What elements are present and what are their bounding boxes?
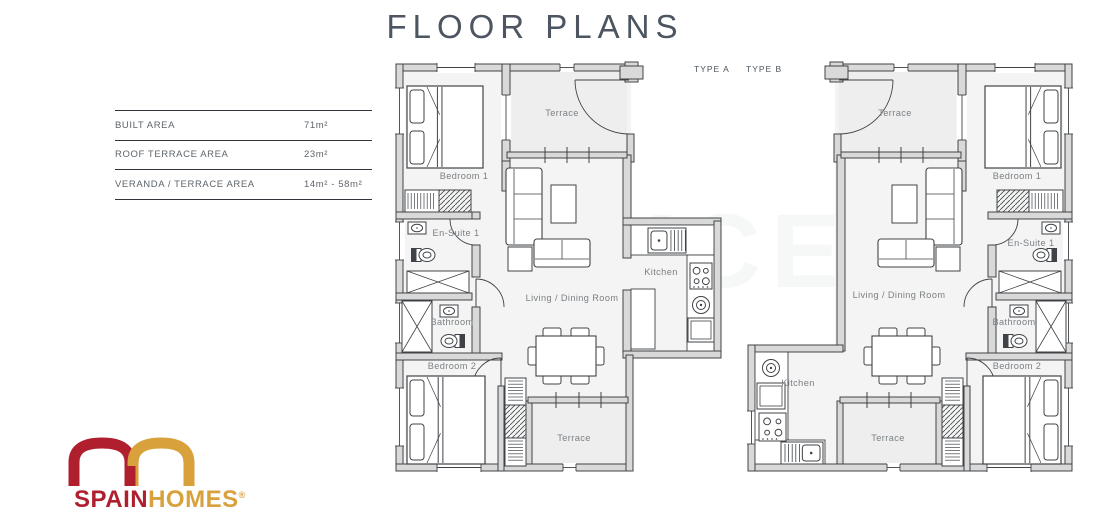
wall [472, 307, 480, 360]
wall [988, 212, 1072, 219]
wall [396, 64, 637, 71]
wardrobe-icon [942, 438, 963, 466]
wardrobe-icon [505, 438, 526, 466]
window-icon [894, 63, 908, 72]
toilet-icon [441, 334, 465, 348]
stove-icon [759, 413, 786, 441]
double-bed-icon [985, 86, 1061, 168]
room-label: Terrace [878, 108, 911, 118]
wall [396, 212, 480, 219]
logo-word-spain: SPAIN [74, 486, 148, 513]
oven-icon [688, 318, 714, 342]
wall [526, 401, 532, 464]
wall [964, 386, 970, 471]
wardrobe-icon [1029, 190, 1063, 212]
washbasin-icon [1010, 305, 1028, 317]
dining-table-icon [864, 328, 940, 384]
floor-plan-type-b: Bedroom 1TerraceEn-Suite 1BathroomBedroo… [746, 62, 1074, 473]
wall [472, 245, 480, 277]
wall [714, 221, 721, 358]
window-icon [957, 95, 967, 140]
window-icon [1063, 222, 1074, 260]
logo-wordmark: SPAINHOMES® [74, 486, 246, 514]
wall [748, 345, 755, 471]
wall [966, 353, 1072, 360]
wall [748, 345, 843, 352]
room-label: Bedroom 2 [428, 361, 477, 371]
wall [396, 353, 502, 360]
shower-icon [407, 271, 469, 293]
window-icon [560, 63, 574, 72]
wall [831, 64, 1072, 71]
wardrobe-hatch-icon [942, 405, 963, 438]
logo-arch-gold [133, 443, 189, 486]
washbasin-icon [1042, 222, 1060, 234]
shower-icon [402, 301, 432, 352]
logo-arches-icon [62, 436, 212, 489]
coffee-table-icon [551, 185, 576, 223]
wardrobe-hatch-icon [997, 190, 1029, 212]
double-bed-icon [407, 86, 483, 168]
wardrobe-hatch-icon [505, 405, 526, 438]
window-icon [394, 388, 405, 446]
room-label: Bedroom 2 [993, 361, 1042, 371]
wall [498, 386, 504, 471]
room-label: Terrace [557, 433, 590, 443]
toilet-icon [1003, 334, 1027, 348]
room-label: Bedroom 1 [993, 171, 1042, 181]
wall [988, 307, 996, 360]
floor-plan-type-a: Bedroom 1TerraceEn-Suite 1BathroomBedroo… [394, 62, 721, 473]
wall [988, 245, 996, 277]
wardrobe-hatch-icon [439, 190, 471, 212]
window-icon [394, 222, 405, 260]
room-label: En-Suite 1 [1008, 238, 1055, 248]
window-icon [887, 463, 900, 472]
room-label: Terrace [545, 108, 578, 118]
dining-table-icon [528, 328, 604, 384]
coffee-table-icon [892, 185, 917, 223]
logo-registered-mark: ® [239, 490, 246, 500]
room-label: Terrace [871, 433, 904, 443]
washbasin-icon [408, 222, 426, 234]
room-label: Living / Dining Room [853, 290, 946, 300]
window-icon [1063, 88, 1074, 134]
wall [396, 293, 472, 300]
window-icon [1063, 388, 1074, 446]
wall [623, 155, 631, 258]
window-icon [501, 95, 511, 140]
wall [623, 290, 631, 358]
double-bed-icon [407, 376, 485, 464]
wall [837, 401, 843, 464]
floor-plans-page: FLOOR PLANS TYPE A TYPE B BUILT AREA 71m… [0, 0, 1118, 523]
window-icon [437, 62, 475, 73]
wardrobe-icon [942, 378, 963, 405]
wall [837, 155, 845, 351]
shower-icon [1036, 301, 1066, 352]
room-label: Bedroom 1 [440, 171, 489, 181]
washing-machine-icon [693, 297, 710, 314]
room-label: Kitchen [781, 378, 814, 388]
double-bed-icon [983, 376, 1061, 464]
wall [626, 355, 633, 471]
window-icon [995, 62, 1035, 73]
wall [623, 351, 721, 358]
spain-homes-logo: SPAINHOMES® [62, 436, 272, 518]
washbasin-icon [440, 305, 458, 317]
window-icon [563, 463, 576, 472]
wall [472, 212, 480, 219]
wall [996, 293, 1072, 300]
logo-word-homes: HOMES [148, 486, 239, 513]
kitchen-sink-icon [781, 442, 823, 464]
room-label: Kitchen [644, 267, 677, 277]
wall [936, 401, 942, 464]
wall [623, 218, 721, 225]
wardrobe-icon [405, 190, 439, 212]
window-icon [394, 88, 405, 134]
toilet-icon [411, 248, 435, 262]
shower-icon [999, 271, 1061, 293]
toilet-icon [1033, 248, 1057, 262]
wardrobe-icon [505, 378, 526, 405]
logo-arch-red [74, 443, 130, 486]
stove-icon [690, 263, 712, 289]
washing-machine-icon [763, 360, 780, 377]
kitchen-sink-icon [648, 228, 686, 253]
kitchen-counter [631, 289, 655, 349]
room-label: En-Suite 1 [433, 228, 480, 238]
room-label: Bathroom [430, 317, 473, 327]
room-label: Bathroom [992, 317, 1035, 327]
room-label: Living / Dining Room [526, 293, 619, 303]
